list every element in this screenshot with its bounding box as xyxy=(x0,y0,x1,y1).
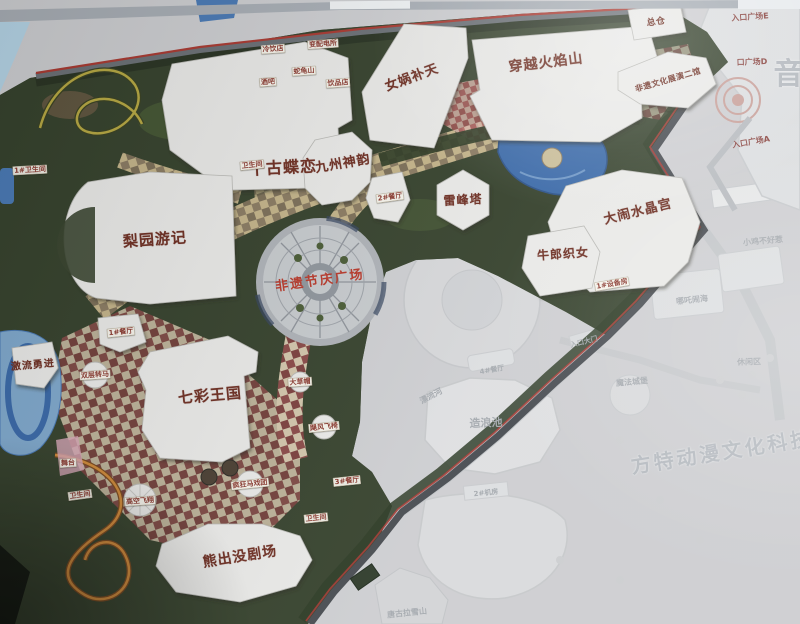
label-lengyindian: 冷饮店 xyxy=(261,44,286,55)
label-fangte-donman-wenhua-keji: 方特动漫文化科技 xyxy=(630,428,800,477)
label-rukou-guangchang-e: 入口广场E xyxy=(731,12,769,23)
label-canting-4: 4#餐厅 xyxy=(479,364,505,375)
label-weishengjian-4: 卫生间 xyxy=(304,512,329,523)
label-feiyi-zhanyan-erguan: 非遗文化展演二馆 xyxy=(634,67,702,93)
label-zaolangchi: 造浪池 xyxy=(469,417,502,429)
label-rukou-damen: 入口大门 xyxy=(570,335,599,349)
label-jifang-2: 2#机房 xyxy=(473,488,498,498)
label-nezha-naohai: 哪吒闹海 xyxy=(676,294,709,305)
label-jiuzhou-shenyun: 九州神韵 xyxy=(314,153,371,176)
label-bianpeidiansuo: 变配电所 xyxy=(307,38,339,49)
label-weishengjian-1: 1#卫生间 xyxy=(12,165,47,176)
label-shebeifang-1: 1#设备房 xyxy=(594,277,630,292)
label-yinpindian: 饮品店 xyxy=(326,78,351,89)
map-labels-layer: 千古蝶恋女娲补天穿越火焰山九州神韵雷峰塔大闹水晶宫牛郎织女梨园游记七彩王国熊出没… xyxy=(0,0,800,624)
label-rukou-guangchang-a: 入口广场A xyxy=(731,135,770,150)
label-jiliu-yongjin: 激流勇进 xyxy=(11,359,56,373)
label-canting-2: 2#餐厅 xyxy=(376,191,405,204)
label-canting-3: 3#餐厅 xyxy=(333,475,362,487)
label-rukou-guangchang-d: 口广场D xyxy=(737,57,768,66)
label-liyuan-youji: 梨园游记 xyxy=(123,230,188,249)
label-zongcang: 总仓 xyxy=(646,16,666,28)
label-fengkuang-maxituan: 疯狂马戏团 xyxy=(231,478,270,491)
label-dacaomao: 大草帽 xyxy=(288,377,313,388)
label-xiongchumo-juchang: 熊出没剧场 xyxy=(202,544,278,570)
label-feiyi-jieqing-guangchang: 非遗节庆广场 xyxy=(275,268,366,293)
label-shegui-shan: 蛇龟山 xyxy=(292,66,317,77)
label-niulang-zhinv: 牛郎织女 xyxy=(537,246,590,262)
label-nvwa-butian: 女娲补天 xyxy=(383,62,440,93)
label-chuanyue-huoyanshan: 穿越火焰山 xyxy=(508,51,584,74)
label-xiaoji-buhaore: 小鸡不好惹 xyxy=(743,235,784,246)
label-jiuba: 酒吧 xyxy=(259,77,277,87)
label-piaoliuhe: 漂流河 xyxy=(419,387,444,405)
label-mofa-chengbao: 魔法城堡 xyxy=(616,377,649,388)
label-leifengta: 雷峰塔 xyxy=(443,193,483,207)
label-wutai: 舞台 xyxy=(59,458,77,468)
label-jufeng-feiyi: 飓风飞椅 xyxy=(308,421,340,433)
label-gaokong-feixiang: 高空飞翔 xyxy=(124,495,156,506)
label-danao-shuijinggong: 大闹水晶宫 xyxy=(602,197,673,227)
label-shuangceng-zhuanma: 双层转马 xyxy=(79,369,111,380)
label-qicai-wangguo: 七彩王国 xyxy=(177,386,242,407)
park-map-photo: 千古蝶恋女娲补天穿越火焰山九州神韵雷峰塔大闹水晶宫牛郎织女梨园游记七彩王国熊出没… xyxy=(0,0,800,624)
label-tanggula-xueshan: 唐古拉雪山 xyxy=(387,607,428,619)
label-yin-char: 音 xyxy=(774,60,800,90)
label-xiuxianqu: 休闲区 xyxy=(737,358,761,367)
label-canting-1: 1#餐厅 xyxy=(107,326,136,338)
label-weishengjian-3: 卫生间 xyxy=(67,489,92,501)
